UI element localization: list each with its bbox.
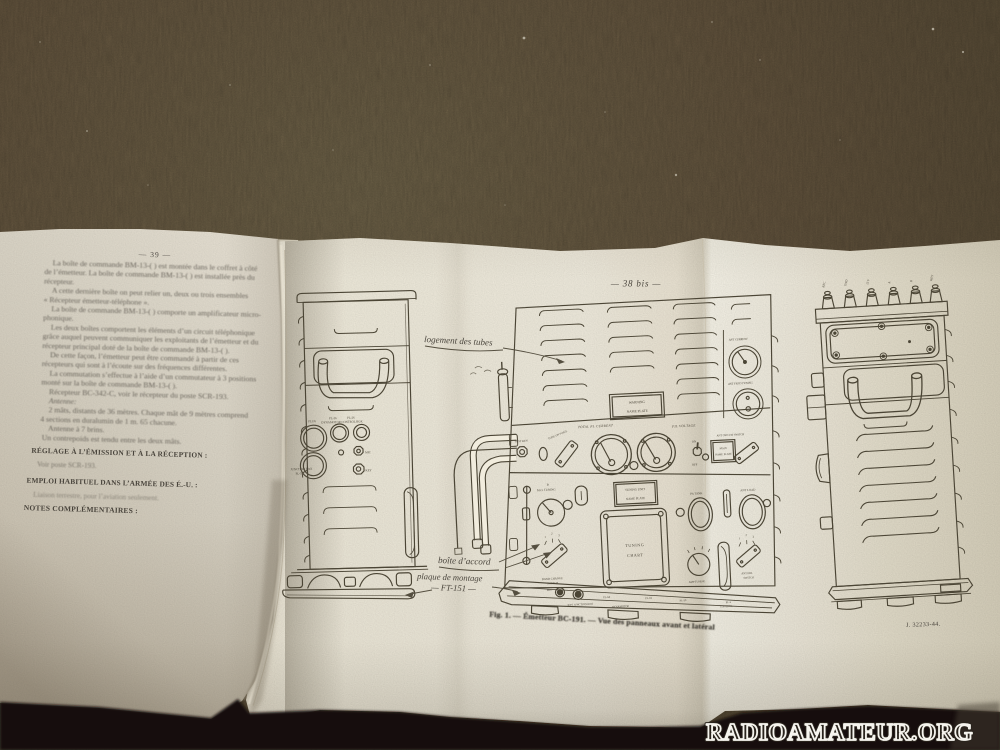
svg-text:ANT LOAD: ANT LOAD bbox=[740, 488, 756, 493]
svg-text:MAIN: MAIN bbox=[720, 447, 727, 450]
svg-text:ANT IND.: ANT IND. bbox=[741, 572, 753, 576]
svg-text:boîte d’accord: boîte d’accord bbox=[438, 555, 491, 567]
svg-text:MIC: MIC bbox=[365, 450, 371, 454]
svg-text:PLUG: PLUG bbox=[308, 419, 317, 423]
svg-text:TUNING: TUNING bbox=[625, 542, 644, 548]
svg-text:— 39 —: — 39 — bbox=[138, 250, 172, 260]
svg-text:KEY: KEY bbox=[365, 468, 372, 472]
svg-text:WARNING: WARNING bbox=[629, 400, 646, 405]
svg-text:phonique.: phonique. bbox=[43, 313, 74, 323]
svg-text:OFF: OFF bbox=[692, 462, 698, 466]
svg-text:CHART: CHART bbox=[627, 552, 644, 558]
svg-text:PL-50: PL-50 bbox=[679, 599, 687, 602]
svg-text:RADIOAMATEUR.ORG: RADIOAMATEUR.ORG bbox=[706, 720, 973, 746]
svg-text:PL-3: PL-3 bbox=[726, 601, 732, 604]
svg-text:— 38 bis —: — 38 bis — bbox=[610, 279, 661, 289]
svg-text:MIC: MIC bbox=[547, 589, 552, 592]
svg-text:Voir poste SCR-193.: Voir poste SCR-193. bbox=[37, 460, 97, 470]
svg-text:B: B bbox=[547, 483, 549, 487]
svg-text:récepteur.: récepteur. bbox=[44, 276, 74, 286]
svg-text:PA TANK: PA TANK bbox=[690, 491, 703, 496]
svg-text:PL-61: PL-61 bbox=[645, 597, 653, 600]
svg-text:TEST KEY: TEST KEY bbox=[514, 439, 529, 444]
svg-text:CONTROL: CONTROL bbox=[720, 605, 733, 609]
svg-text:— FT-151 —: — FT-151 — bbox=[430, 582, 476, 594]
svg-text:SWITCH: SWITCH bbox=[743, 576, 753, 580]
svg-text:J. 32233-44.: J. 32233-44. bbox=[906, 621, 941, 629]
svg-text:PL-64: PL-64 bbox=[603, 596, 611, 599]
